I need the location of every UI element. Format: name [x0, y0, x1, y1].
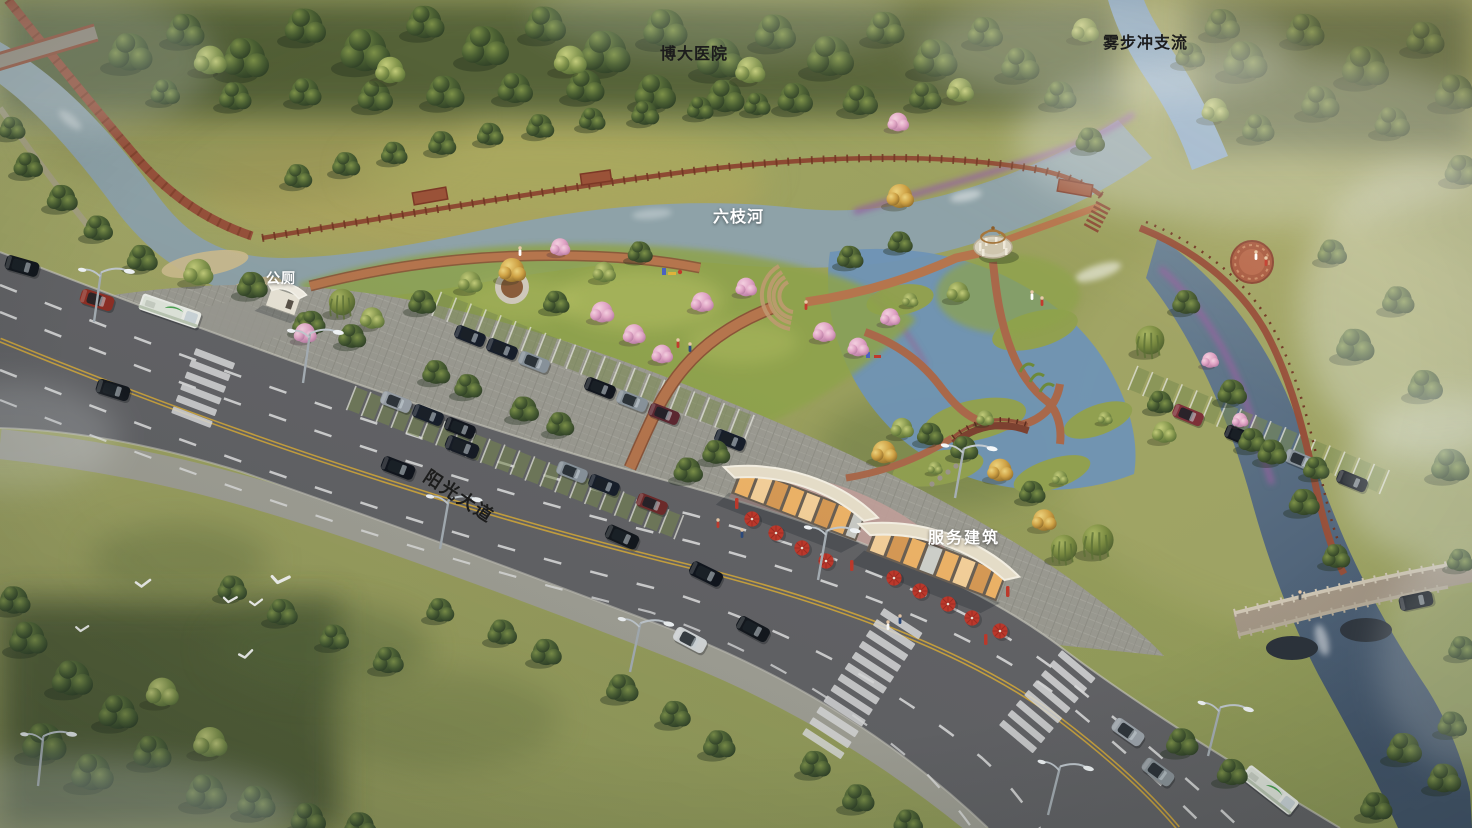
- label-wubuchong-tributary: 雾步冲支流: [1103, 29, 1188, 53]
- label-public-toilet: 公厕: [266, 268, 296, 288]
- scene-rendering: [0, 0, 1472, 828]
- aerial-rendering: 博大医院 雾步冲支流 六枝河 公厕 阳光大道 服务建筑: [0, 0, 1472, 828]
- vignette: [0, 0, 1472, 828]
- label-service-building: 服务建筑: [928, 524, 1000, 548]
- label-liuzhi-river: 六枝河: [713, 203, 764, 227]
- label-boda-hospital: 博大医院: [660, 40, 728, 64]
